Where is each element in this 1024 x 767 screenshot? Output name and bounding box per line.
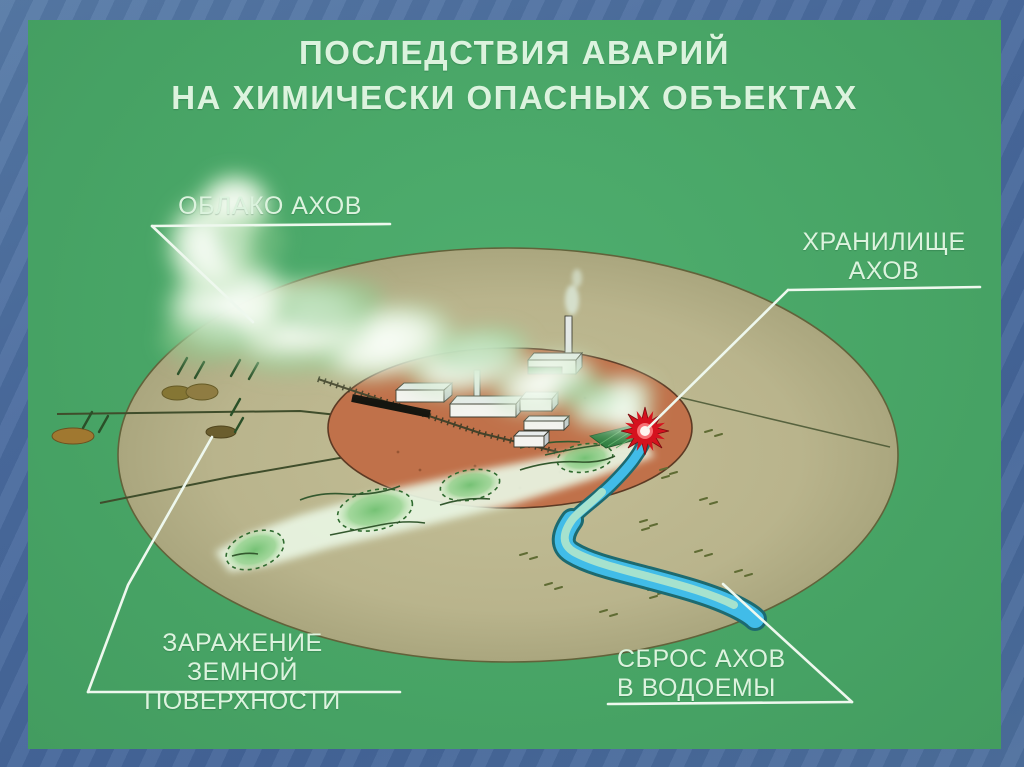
contamination-patch <box>52 428 94 444</box>
factory-building <box>524 416 569 430</box>
label-storage-line2: АХОВ <box>784 257 984 286</box>
label-ground-line1: ЗАРАЖЕНИЕ <box>90 629 395 658</box>
label-water-line2: В ВОДОЕМЫ <box>617 674 867 703</box>
label-storage: ХРАНИЛИЩЕ АХОВ <box>784 228 984 286</box>
contamination-patch <box>206 426 236 438</box>
contamination-patch <box>186 384 218 400</box>
label-underline-storage <box>788 287 980 290</box>
label-water-discharge: СБРОС АХОВ В ВОДОЕМЫ <box>617 645 867 703</box>
slide: ПОСЛЕДСТВИЯ АВАРИЙ НА ХИМИЧЕСКИ ОПАСНЫХ … <box>0 0 1024 767</box>
label-toxic-cloud: ОБЛАКО АХОВ <box>150 192 390 221</box>
label-water-line1: СБРОС АХОВ <box>617 645 867 674</box>
label-ground-line2: ЗЕМНОЙ ПОВЕРХНОСТИ <box>90 658 395 716</box>
factory-building <box>514 431 549 447</box>
label-storage-line1: ХРАНИЛИЩЕ <box>784 228 984 257</box>
label-ground-contamination: ЗАРАЖЕНИЕ ЗЕМНОЙ ПОВЕРХНОСТИ <box>90 629 395 716</box>
